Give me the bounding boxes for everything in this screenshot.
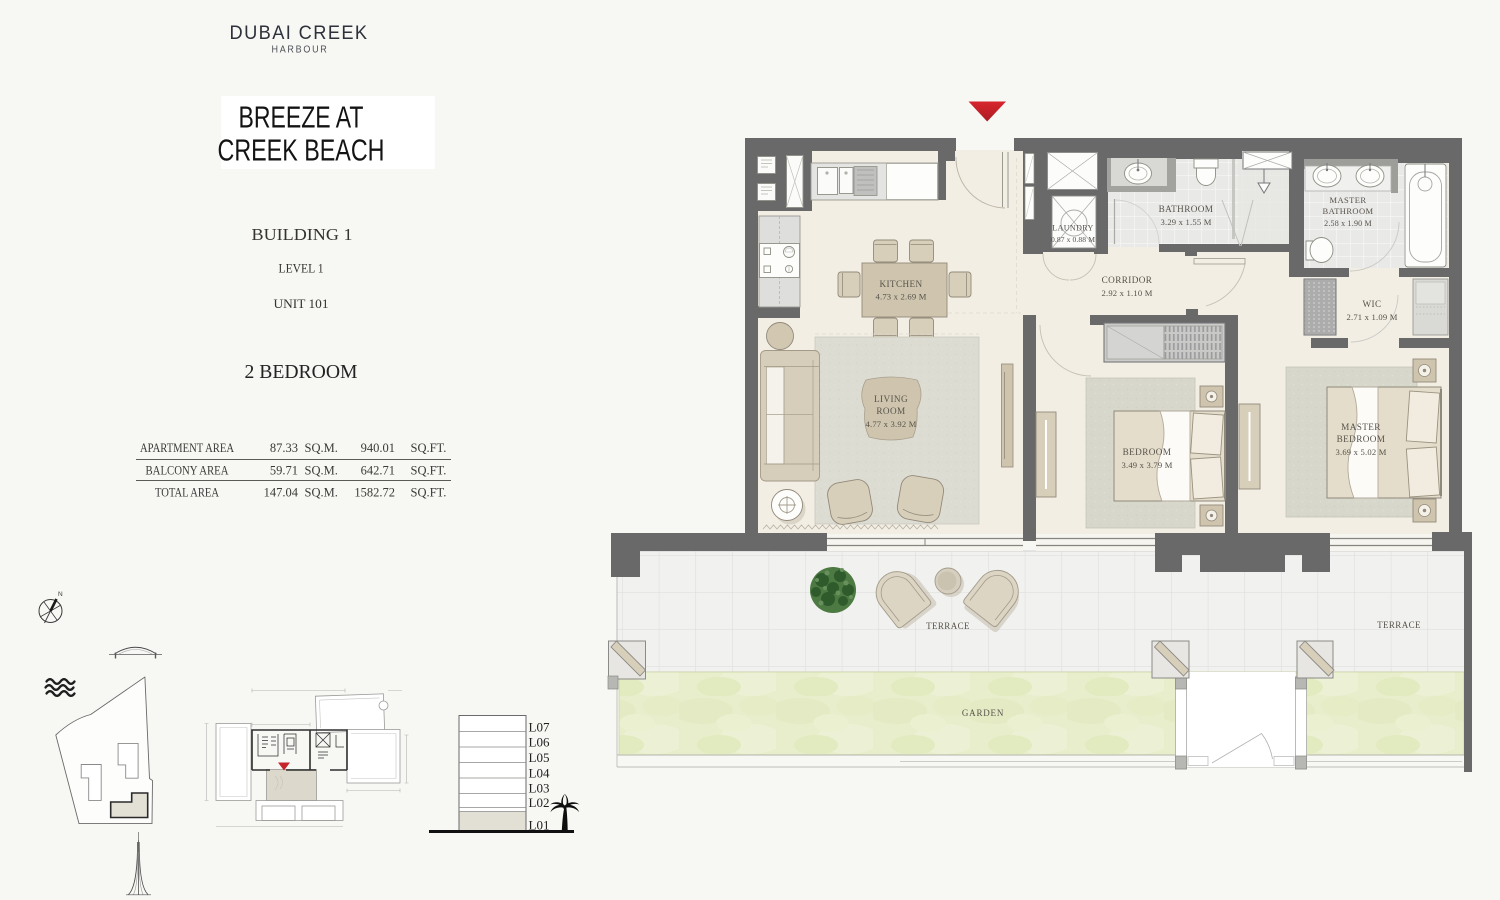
svg-text:2.92 x 1.10 M: 2.92 x 1.10 M	[1101, 288, 1152, 298]
svg-text:DUBAI CREEK: DUBAI CREEK	[230, 22, 369, 44]
svg-text:CORRIDOR: CORRIDOR	[1102, 275, 1153, 285]
svg-text:642.71: 642.71	[361, 464, 395, 478]
svg-text:87.33: 87.33	[270, 441, 298, 455]
svg-text:UNIT 101: UNIT 101	[274, 296, 329, 311]
svg-text:BATHROOM: BATHROOM	[1159, 204, 1214, 214]
svg-text:SQ.M.: SQ.M.	[305, 441, 338, 455]
svg-text:L02: L02	[529, 795, 550, 810]
svg-text:BEDROOM: BEDROOM	[1123, 447, 1172, 457]
svg-text:940.01: 940.01	[361, 441, 395, 455]
svg-text:LAUNDRY: LAUNDRY	[1052, 224, 1093, 233]
svg-text:MASTER: MASTER	[1341, 422, 1381, 432]
svg-text:59.71: 59.71	[270, 464, 298, 478]
svg-text:KITCHEN: KITCHEN	[879, 279, 922, 289]
svg-text:APARTMENT AREA: APARTMENT AREA	[140, 441, 234, 455]
svg-text:SQ.FT.: SQ.FT.	[411, 486, 447, 500]
svg-text:1582.72: 1582.72	[354, 486, 395, 500]
svg-text:L07: L07	[529, 720, 550, 735]
svg-text:ROOM: ROOM	[876, 406, 905, 416]
svg-text:TERRACE: TERRACE	[1377, 620, 1421, 630]
svg-text:2 BEDROOM: 2 BEDROOM	[245, 361, 358, 383]
svg-text:SQ.FT.: SQ.FT.	[411, 464, 447, 478]
svg-text:WIC: WIC	[1362, 299, 1381, 309]
svg-text:GARDEN: GARDEN	[962, 708, 1004, 718]
svg-text:N: N	[58, 591, 63, 598]
svg-text:0.87 x 0.88 M: 0.87 x 0.88 M	[1051, 235, 1095, 244]
svg-text:LEVEL 1: LEVEL 1	[279, 261, 324, 276]
svg-text:BALCONY AREA: BALCONY AREA	[146, 464, 229, 478]
svg-text:BATHROOM: BATHROOM	[1323, 206, 1374, 216]
svg-text:147.04: 147.04	[264, 486, 299, 500]
svg-text:L06: L06	[529, 735, 550, 750]
svg-text:3.29 x 1.55 M: 3.29 x 1.55 M	[1160, 217, 1211, 227]
svg-text:LIVING: LIVING	[874, 394, 908, 404]
svg-text:HARBOUR: HARBOUR	[272, 44, 329, 56]
svg-text:CREEK BEACH: CREEK BEACH	[218, 134, 385, 168]
svg-text:L03: L03	[529, 781, 550, 796]
svg-text:SQ.M.: SQ.M.	[305, 486, 338, 500]
svg-text:TERRACE: TERRACE	[926, 621, 970, 631]
svg-text:3.49 x 3.79 M: 3.49 x 3.79 M	[1121, 460, 1172, 470]
svg-text:TOTAL AREA: TOTAL AREA	[155, 486, 219, 500]
svg-text:4.77 x 3.92 M: 4.77 x 3.92 M	[865, 419, 916, 429]
svg-text:SQ.M.: SQ.M.	[305, 464, 338, 478]
svg-text:3.69 x 5.02 M: 3.69 x 5.02 M	[1335, 447, 1386, 457]
svg-text:BUILDING 1: BUILDING 1	[252, 225, 353, 244]
svg-text:SQ.FT.: SQ.FT.	[411, 441, 447, 455]
svg-text:4.73 x 2.69 M: 4.73 x 2.69 M	[875, 292, 926, 302]
svg-text:2.71 x 1.09 M: 2.71 x 1.09 M	[1346, 312, 1397, 322]
svg-text:2.58 x 1.90 M: 2.58 x 1.90 M	[1324, 219, 1372, 228]
svg-text:BEDROOM: BEDROOM	[1337, 434, 1386, 444]
svg-text:BREEZE AT: BREEZE AT	[239, 101, 364, 135]
svg-text:L04: L04	[529, 766, 550, 781]
svg-text:MASTER: MASTER	[1330, 195, 1367, 205]
svg-text:L05: L05	[529, 750, 550, 765]
